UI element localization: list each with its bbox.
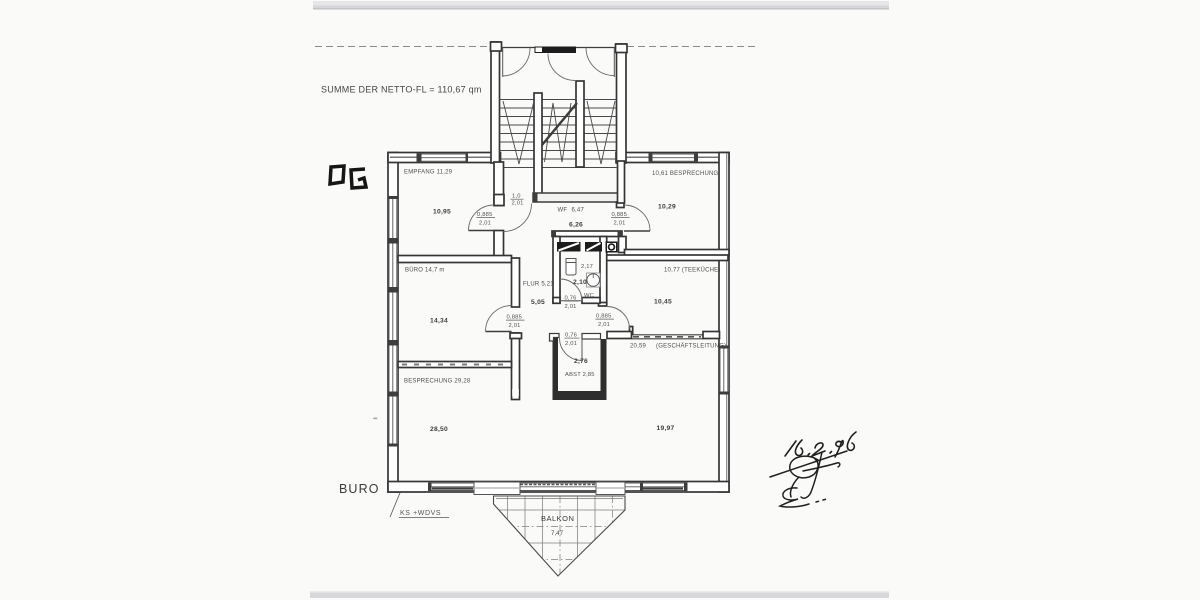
svg-text:6,26: 6,26	[569, 222, 583, 229]
svg-text:BÜRO 14,7 m: BÜRO 14,7 m	[405, 267, 445, 274]
svg-text:2,01: 2,01	[565, 341, 577, 347]
svg-text:2,10: 2,10	[573, 279, 587, 286]
svg-text:0,885: 0,885	[596, 314, 612, 320]
svg-text:10,61 BESPRECHUNG: 10,61 BESPRECHUNG	[652, 171, 719, 177]
svg-text:2,01: 2,01	[509, 323, 521, 329]
svg-text:0,885: 0,885	[477, 212, 493, 218]
svg-text:FLUR 5,21: FLUR 5,21	[523, 282, 554, 288]
svg-text:ABST 2,85: ABST 2,85	[565, 372, 595, 378]
svg-text:2,01: 2,01	[479, 221, 491, 227]
svg-text:2,01: 2,01	[565, 304, 577, 310]
svg-text:2,01: 2,01	[614, 221, 626, 227]
svg-text:20,59: 20,59	[630, 344, 646, 350]
svg-text:BALKON: BALKON	[541, 514, 574, 523]
svg-text:6,47: 6,47	[572, 208, 585, 214]
svg-text:28,50: 28,50	[430, 426, 448, 433]
svg-text:KS +WDVS: KS +WDVS	[400, 510, 441, 517]
svg-text:2,01: 2,01	[512, 201, 524, 207]
svg-text:BESPRECHUNG 29,28: BESPRECHUNG 29,28	[404, 379, 471, 385]
svg-text:WC: WC	[584, 293, 594, 299]
svg-text:0,76: 0,76	[565, 296, 577, 302]
svg-text:SUMME DER NETTO-FL = 110: SUMME DER NETTO-FL = 110,67 qm	[321, 85, 482, 95]
svg-text:WF: WF	[558, 208, 568, 214]
svg-text:1,0: 1,0	[512, 194, 521, 200]
svg-text:BURO: BURO	[339, 482, 380, 496]
svg-text:10,77 (TEEKÜCHE): 10,77 (TEEKÜCHE)	[664, 267, 721, 274]
svg-text:10,95: 10,95	[433, 209, 451, 216]
svg-text:2,76: 2,76	[574, 358, 588, 365]
svg-text:10,29: 10,29	[658, 204, 676, 211]
svg-text:0,76: 0,76	[565, 333, 577, 339]
svg-text:10,45: 10,45	[654, 299, 672, 306]
svg-text:2,01: 2,01	[598, 322, 610, 328]
svg-text:5,05: 5,05	[531, 299, 545, 306]
svg-text:0,885: 0,885	[612, 212, 628, 218]
svg-text:7,47: 7,47	[551, 530, 564, 537]
svg-text:19,97: 19,97	[657, 425, 675, 432]
svg-text:2,17: 2,17	[581, 264, 593, 270]
svg-text:(GESCHÄFTSLEITUNG): (GESCHÄFTSLEITUNG)	[656, 343, 726, 350]
svg-text:EMPFANG 11,29: EMPFANG 11,29	[404, 170, 453, 176]
svg-text:14,34: 14,34	[430, 318, 448, 325]
svg-text:0,885: 0,885	[507, 315, 523, 321]
